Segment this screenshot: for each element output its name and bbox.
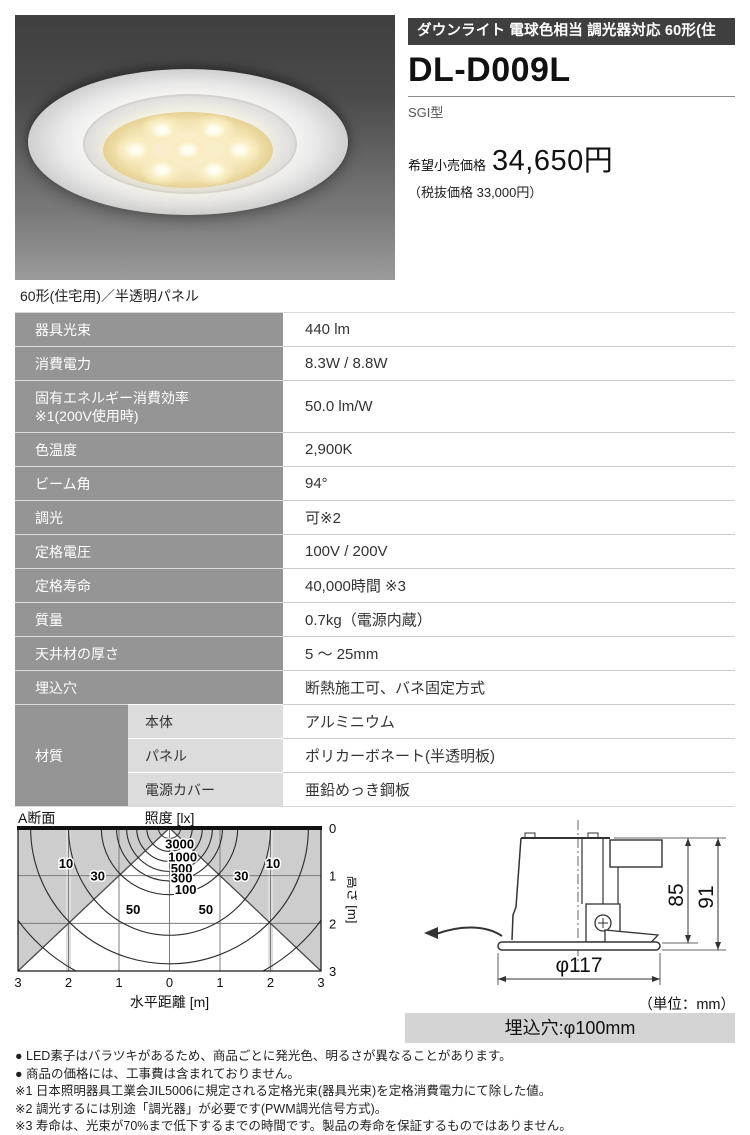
spec-sublabel: 電源カバー (128, 773, 283, 807)
header-divider (408, 96, 735, 97)
spec-row: 消費電力8.3W / 8.8W (15, 347, 735, 381)
product-photo (15, 15, 395, 280)
flange (498, 942, 660, 950)
spec-value: 可※2 (283, 501, 735, 535)
spec-row: 天井材の厚さ5 ～ 25mm (15, 637, 735, 671)
x-tick-label: 1 (115, 975, 122, 990)
spec-row: 調光可※2 (15, 501, 735, 535)
cutout-hole-bar: 埋込穴:φ100mm (405, 1013, 735, 1043)
terminal-box (610, 840, 662, 867)
fixture-drawing: 85 91 φ117 (400, 812, 745, 997)
arrowhead (498, 976, 506, 982)
spec-label: 埋込穴 (15, 671, 283, 705)
spec-value: 40,000時間 ※3 (283, 569, 735, 603)
spec-label: 質量 (15, 603, 283, 637)
spec-row: 定格寿命40,000時間 ※3 (15, 569, 735, 603)
contour-label: 50 (199, 902, 213, 917)
spec-label: 定格寿命 (15, 569, 283, 603)
power-cable (436, 928, 502, 937)
spec-label: 調光 (15, 501, 283, 535)
contour-label: 10 (266, 856, 280, 871)
price-value: 34,650円 (492, 145, 613, 177)
spec-value: 亜鉛めっき鋼板 (283, 773, 735, 807)
x-tick-label: 3 (317, 975, 324, 990)
chart-section-label: A断面 (18, 810, 55, 826)
spec-sublabel: 本体 (128, 705, 283, 739)
dim-depth-label: 85 (665, 883, 688, 906)
chart-title: 照度 [lx] (145, 810, 195, 826)
spec-label: 定格電圧 (15, 535, 283, 569)
spec-value: ポリカーボネート(半透明板) (283, 739, 735, 773)
spec-row: 質量0.7kg（電源内蔵） (15, 603, 735, 637)
price-tax-note: （税抜価格 33,000円） (408, 182, 735, 201)
y-axis-title: 高さ [m] (345, 876, 357, 924)
spec-value: 440 lm (283, 313, 735, 347)
spec-sublabel: パネル (128, 739, 283, 773)
y-tick-label: 2 (329, 916, 336, 931)
contour-label: 100 (175, 882, 197, 897)
x-tick-label: 1 (216, 975, 223, 990)
photo-caption: 60形(住宅用)／半透明パネル (20, 286, 199, 306)
led-dot (166, 134, 210, 166)
product-header: ダウンライト 電球色相当 調光器対応 60形(住宅用) DL-D009L SGI… (408, 18, 735, 201)
arrowhead (685, 935, 691, 943)
spec-label: 固有エネルギー消費効率※1(200V使用時) (15, 381, 283, 433)
unit-note: （単位：mm） (400, 993, 735, 1014)
footnote: ● 商品の価格には、工事費は含まれておりません。 (15, 1066, 740, 1084)
spec-row: 固有エネルギー消費効率※1(200V使用時)50.0 lm/W (15, 381, 735, 433)
type-label: SGI型 (408, 102, 735, 121)
spec-label: 消費電力 (15, 347, 283, 381)
x-tick-label: 0 (166, 975, 173, 990)
model-number: DL-D009L (408, 51, 735, 89)
isolux-chart-box: 3000100050030010050503030101032101230123… (12, 810, 357, 1015)
spec-row: 色温度2,900K (15, 433, 735, 467)
spec-row: 定格電圧100V / 200V (15, 535, 735, 569)
spec-table: 器具光束440 lm消費電力8.3W / 8.8W固有エネルギー消費効率※1(2… (15, 312, 735, 807)
spec-value: 2,900K (283, 433, 735, 467)
x-axis-title: 水平距離 [m] (130, 994, 209, 1010)
arrowhead (715, 942, 721, 950)
contour-label: 30 (234, 869, 248, 884)
spec-value: 5 ～ 25mm (283, 637, 735, 671)
spec-row-material: 材質本体アルミニウム (15, 705, 735, 739)
spec-value: 100V / 200V (283, 535, 735, 569)
spec-value: 8.3W / 8.8W (283, 347, 735, 381)
price-label: 希望小売価格 (408, 158, 486, 173)
cable-tip (424, 927, 438, 939)
spec-label: ビーム角 (15, 467, 283, 501)
contour-label: 50 (126, 902, 140, 917)
contour-label: 10 (59, 856, 73, 871)
arrowhead (715, 838, 721, 846)
arrowhead (685, 838, 691, 846)
footer-notes: ● LED素子はバラツキがあるため、商品ごとに発光色、明るさが異なることがありま… (15, 1048, 740, 1135)
dim-height-label: 91 (695, 885, 718, 908)
footnote: ※3 寿命は、光束が70%まで低下するまでの時間です。製品の寿命を保証するもので… (15, 1118, 740, 1135)
spec-row: 埋込穴断熱施工可、バネ固定方式 (15, 671, 735, 705)
x-tick-label: 3 (14, 975, 21, 990)
y-tick-label: 1 (329, 869, 336, 884)
footnote: ● LED素子はバラツキがあるため、商品ごとに発光色、明るさが異なることがありま… (15, 1048, 740, 1066)
product-spec-page: 60形(住宅用)／半透明パネル ダウンライト 電球色相当 調光器対応 60形(住… (0, 0, 750, 1135)
spec-value: 50.0 lm/W (283, 381, 735, 433)
price-row: 希望小売価格34,650円 (408, 137, 735, 179)
y-tick-label: 3 (329, 964, 336, 979)
spec-label: 色温度 (15, 433, 283, 467)
dim-diameter-label: φ117 (555, 954, 602, 977)
spec-row: ビーム角94° (15, 467, 735, 501)
spec-label: 器具光束 (15, 313, 283, 347)
spec-value: 断熱施工可、バネ固定方式 (283, 671, 735, 705)
x-tick-label: 2 (65, 975, 72, 990)
spec-value: 0.7kg（電源内蔵） (283, 603, 735, 637)
spec-label: 天井材の厚さ (15, 637, 283, 671)
spec-value: 94° (283, 467, 735, 501)
spec-label-material: 材質 (15, 705, 128, 807)
x-tick-label: 2 (267, 975, 274, 990)
spec-row: 器具光束440 lm (15, 313, 735, 347)
footnote: ※2 調光するには別途「調光器」が必要です(PWM調光信号方式)。 (15, 1101, 740, 1119)
spec-value: アルミニウム (283, 705, 735, 739)
isolux-chart: 3000100050030010050503030101032101230123… (12, 810, 357, 1015)
footnote: ※1 日本照明器具工業会JIL5006に規定される定格光束(器具光束)を定格消費… (15, 1083, 740, 1101)
fixture-drawing-box: 85 91 φ117 (400, 812, 745, 997)
category-bar: ダウンライト 電球色相当 調光器対応 60形(住宅用) (408, 18, 735, 45)
body-left-edge (512, 838, 521, 940)
y-tick-label: 0 (329, 821, 336, 836)
arrowhead (652, 976, 660, 982)
contour-label: 30 (91, 869, 105, 884)
